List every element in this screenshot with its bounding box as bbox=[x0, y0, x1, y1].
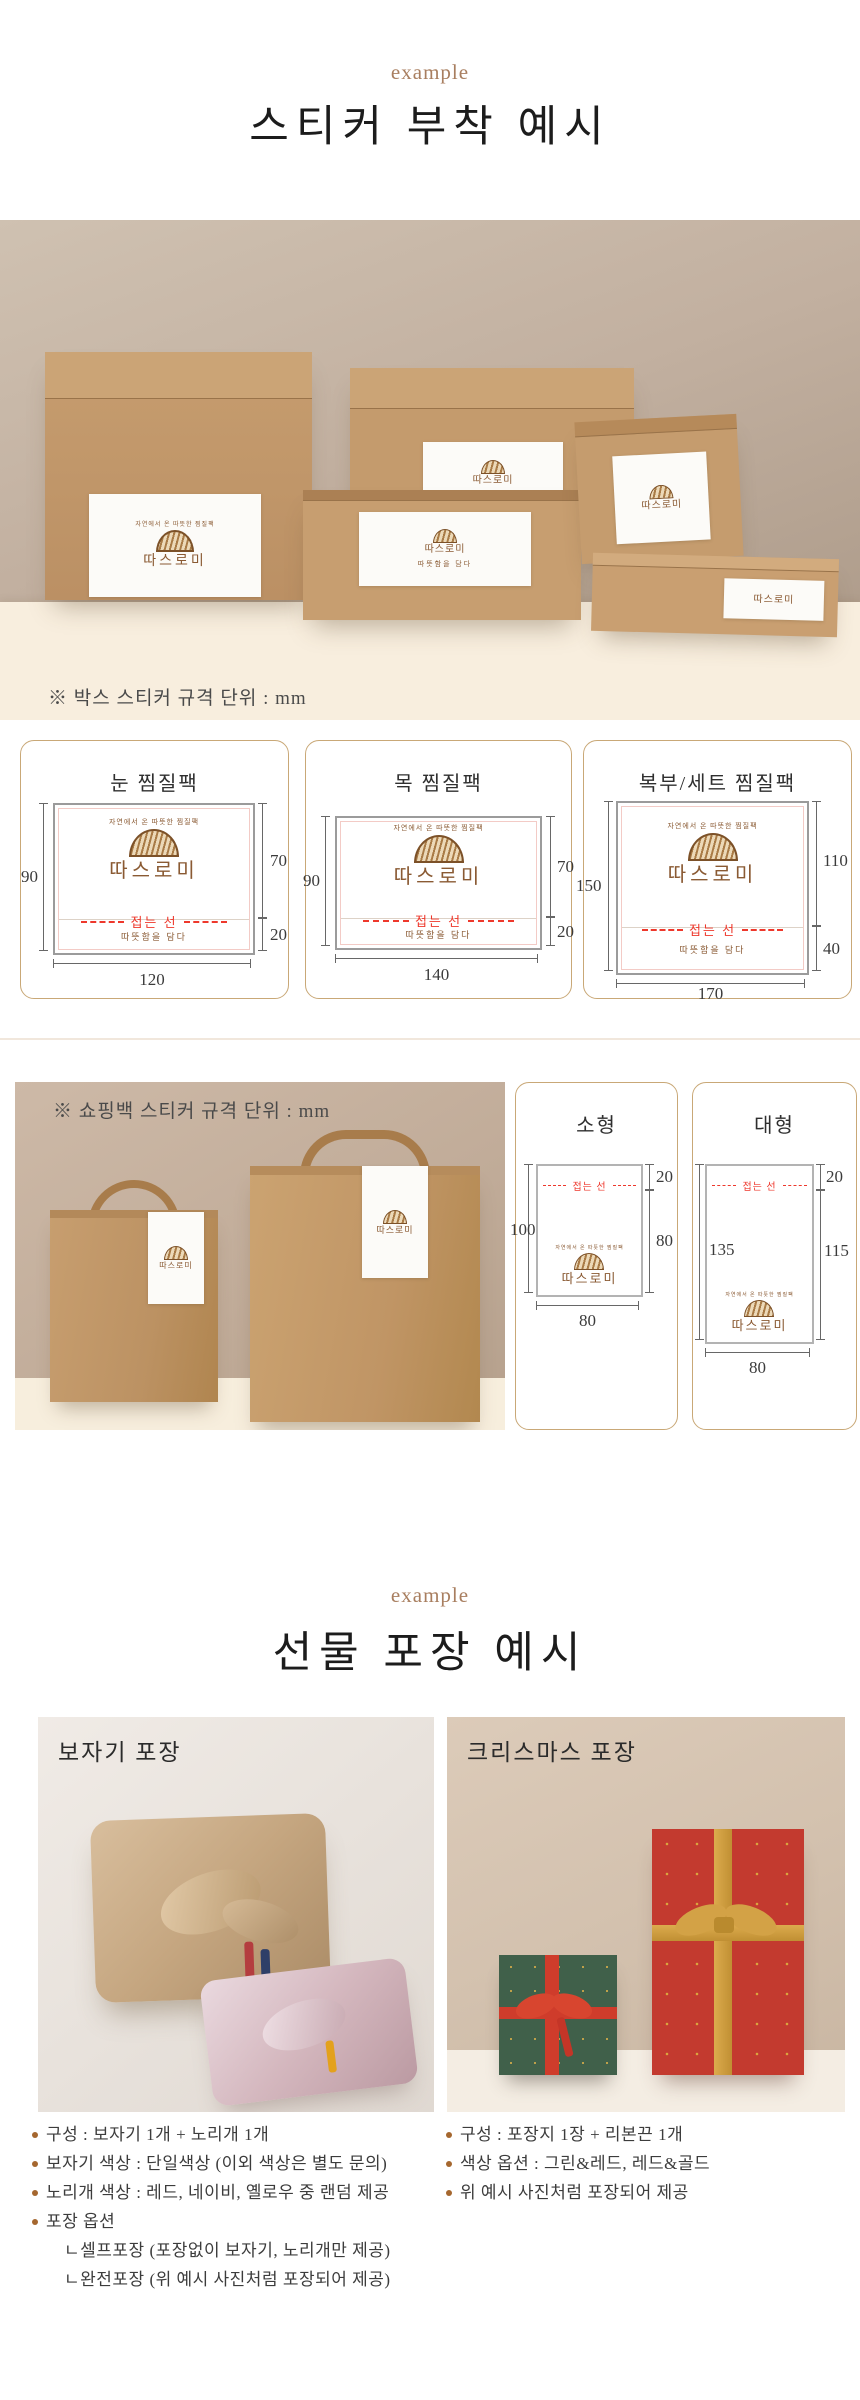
logo-arch-text: 자연에서 온 따뜻한 찜질팩 bbox=[393, 825, 483, 832]
bojagi-label: 보자기 포장 bbox=[58, 1733, 182, 1767]
brand-emblem-icon bbox=[481, 460, 505, 474]
sticker-diagram: 접는 선 자연에서 온 따뜻한 찜질팩 따스로미 bbox=[536, 1164, 643, 1297]
dim-width: 120 bbox=[53, 970, 251, 990]
bag-note: ※ 쇼핑백 스티커 규격 단위 : mm bbox=[53, 1096, 330, 1123]
spec-card-title: 눈 찜질팩 bbox=[21, 767, 288, 796]
sticker-tagline: 따뜻함을 담다 bbox=[418, 559, 472, 569]
spec-card-bag-large: 대형 접는 선 자연에서 온 따뜻한 찜질팩 따스로미 135 20 115 8… bbox=[692, 1082, 857, 1430]
logo-arch-text: 자연에서 온 따뜻한 찜질팩 bbox=[555, 1246, 623, 1251]
brand-logo: 자연에서 온 따뜻한 찜질팩 따스로미 bbox=[337, 825, 540, 887]
bullet-dot-icon bbox=[446, 2161, 452, 2167]
spec-card-title: 대형 bbox=[693, 1109, 856, 1138]
spec-card-neck-pack: 목 찜질팩 자연에서 온 따뜻한 찜질팩 따스로미 접는 선 따뜻함을 담다 9… bbox=[305, 740, 572, 999]
brand-emblem-icon bbox=[129, 829, 179, 857]
brand-logo: 자연에서 온 따뜻한 찜질팩 따스로미 bbox=[538, 1246, 641, 1285]
fold-line-label: 접는 선 bbox=[363, 911, 514, 930]
sticker-tagline: 따뜻함을 담다 bbox=[618, 943, 807, 956]
brand-name: 따스로미 bbox=[732, 1319, 788, 1332]
product-detail-page: example 스티커 부착 예시 자연에서 온 따뜻한 찜질팩 따스로미 따스… bbox=[0, 0, 860, 2400]
shopping-bag-large: 따스로미 bbox=[250, 1166, 480, 1422]
brand-emblem-icon bbox=[156, 530, 194, 552]
dim-lower: 115 bbox=[824, 1241, 849, 1261]
bullet-dot-icon bbox=[32, 2132, 38, 2138]
fold-line-label: 접는 선 bbox=[712, 1178, 807, 1193]
brand-name: 따스로미 bbox=[159, 1262, 192, 1270]
christmas-label: 크리스마스 포장 bbox=[467, 1733, 637, 1767]
list-subitem: ㄴ완전포장 (위 예시 사진처럼 포장되어 제공) bbox=[30, 2265, 440, 2294]
bullet-dot-icon bbox=[446, 2132, 452, 2138]
green-gift-box bbox=[499, 1955, 617, 2075]
brand-logo: 자연에서 온 따뜻한 찜질팩 따스로미 bbox=[707, 1293, 812, 1332]
dimension-line bbox=[812, 801, 821, 926]
spec-card-belly-set-pack: 복부/세트 찜질팩 자연에서 온 따뜻한 찜질팩 따스로미 접는 선 따뜻함을 … bbox=[583, 740, 852, 999]
dimension-line bbox=[604, 801, 613, 971]
kraft-box-large: 자연에서 온 따뜻한 찜질팩 따스로미 bbox=[45, 352, 312, 600]
sticker-diagram: 자연에서 온 따뜻한 찜질팩 따스로미 접는 선 따뜻함을 담다 bbox=[53, 803, 255, 955]
box-sticker: 따스로미 bbox=[612, 451, 710, 544]
bag-sticker: 따스로미 bbox=[148, 1212, 204, 1304]
section1-title: 스티커 부착 예시 bbox=[0, 92, 860, 154]
dim-lower: 20 bbox=[557, 922, 574, 942]
brand-name: 따스로미 bbox=[562, 1272, 618, 1285]
dim-upper: 110 bbox=[823, 851, 848, 871]
section-divider bbox=[0, 1038, 860, 1040]
brand-logo: 자연에서 온 따뜻한 찜질팩 따스로미 bbox=[55, 819, 253, 881]
dim-height: 135 bbox=[709, 1240, 743, 1260]
dim-width: 140 bbox=[335, 965, 538, 985]
bullet-dot-icon bbox=[446, 2190, 452, 2196]
bag-sticker: 따스로미 bbox=[362, 1166, 428, 1278]
bojagi-photo: 보자기 포장 bbox=[38, 1717, 434, 2112]
brand-emblem-icon bbox=[688, 833, 738, 861]
dimension-line bbox=[258, 803, 267, 918]
logo-arch-text: 자연에서 온 따뜻한 찜질팩 bbox=[667, 823, 757, 830]
logo-arch-text: 자연에서 온 따뜻한 찜질팩 bbox=[109, 819, 199, 826]
gold-ribbon bbox=[714, 1829, 732, 2075]
dim-height: 100 bbox=[510, 1220, 540, 1240]
brand-logo: 따스로미 bbox=[753, 593, 794, 606]
list-item: 포장 옵션 bbox=[30, 2207, 440, 2236]
red-gift-box bbox=[652, 1829, 804, 2075]
bullet-dot-icon bbox=[32, 2190, 38, 2196]
logo-arch-text: 자연에서 온 따뜻한 찜질팩 bbox=[725, 1293, 793, 1298]
kraft-box-small-standing: 따스로미 bbox=[574, 414, 743, 564]
brand-emblem-icon bbox=[574, 1253, 604, 1270]
dimension-line bbox=[546, 917, 555, 946]
dim-top: 20 bbox=[656, 1167, 673, 1187]
dimension-line bbox=[645, 1164, 654, 1190]
brand-emblem-icon bbox=[164, 1246, 188, 1260]
bow-knot bbox=[714, 1917, 734, 1933]
bullet-dot-icon bbox=[32, 2219, 38, 2225]
sticker-tagline: 따뜻함을 담다 bbox=[55, 930, 253, 943]
dimension-line bbox=[39, 803, 48, 951]
section1-eyebrow: example bbox=[0, 60, 860, 85]
kraft-box-front: 따스로미 따뜻함을 담다 bbox=[303, 490, 581, 620]
dimension-line bbox=[812, 926, 821, 971]
fold-line-label: 접는 선 bbox=[642, 920, 783, 939]
box-lid bbox=[303, 490, 581, 501]
dim-width: 80 bbox=[536, 1311, 639, 1331]
brand-emblem-icon bbox=[383, 1210, 407, 1224]
box-photo: 자연에서 온 따뜻한 찜질팩 따스로미 따스로미 따스로미 bbox=[0, 220, 860, 720]
spec-card-title: 소형 bbox=[516, 1109, 677, 1138]
christmas-bullet-list: 구성 : 포장지 1장 + 리본끈 1개 색상 옵션 : 그린&레드, 레드&골… bbox=[444, 2120, 844, 2207]
dimension-line bbox=[695, 1164, 704, 1340]
box-sticker: 자연에서 온 따뜻한 찜질팩 따스로미 bbox=[89, 494, 261, 597]
dim-width: 170 bbox=[616, 984, 805, 1004]
tassel-red bbox=[244, 1942, 254, 1980]
dimension-line bbox=[816, 1190, 825, 1340]
dim-upper: 70 bbox=[270, 851, 287, 871]
dimension-line bbox=[321, 816, 330, 946]
dimension-line bbox=[546, 816, 555, 917]
brand-logo: 따스로미 bbox=[425, 529, 466, 555]
kraft-box-flat: 따스로미 bbox=[591, 553, 839, 637]
dimension-line bbox=[258, 918, 267, 951]
spec-card-title: 목 찜질팩 bbox=[306, 767, 571, 796]
bojagi-bullet-list: 구성 : 보자기 1개 + 노리개 1개 보자기 색상 : 단일색상 (이외 색… bbox=[30, 2120, 440, 2294]
dim-height: 90 bbox=[21, 867, 37, 887]
dimension-line bbox=[335, 954, 538, 963]
brand-emblem-icon bbox=[649, 484, 674, 499]
fold-line-label: 접는 선 bbox=[81, 912, 227, 931]
bojagi-knot bbox=[256, 1989, 352, 2060]
dimension-line bbox=[536, 1301, 639, 1310]
sticker-diagram: 자연에서 온 따뜻한 찜질팩 따스로미 접는 선 따뜻함을 담다 bbox=[616, 801, 809, 975]
brand-name: 따스로미 bbox=[376, 1226, 413, 1235]
box-note: ※ 박스 스티커 규격 단위 : mm bbox=[48, 683, 307, 710]
brand-logo: 따스로미 bbox=[159, 1246, 192, 1270]
pink-bojagi-gift bbox=[199, 1957, 419, 2107]
brand-emblem-icon bbox=[744, 1300, 774, 1317]
brand-name: 따스로미 bbox=[473, 476, 514, 486]
brand-name: 따스로미 bbox=[753, 595, 794, 606]
sticker-diagram: 자연에서 온 따뜻한 찜질팩 따스로미 접는 선 따뜻함을 담다 bbox=[335, 816, 542, 950]
box-sticker: 따스로미 bbox=[723, 578, 824, 621]
dimension-line bbox=[705, 1348, 810, 1357]
dim-upper: 70 bbox=[557, 857, 574, 877]
brand-logo: 자연에서 온 따뜻한 찜질팩 따스로미 bbox=[135, 522, 214, 569]
list-item: 구성 : 보자기 1개 + 노리개 1개 bbox=[30, 2120, 440, 2149]
section2-eyebrow: example bbox=[0, 1583, 860, 1608]
spec-card-eye-pack: 눈 찜질팩 자연에서 온 따뜻한 찜질팩 따스로미 접는 선 따뜻함을 담다 9… bbox=[20, 740, 289, 999]
spec-card-title: 복부/세트 찜질팩 bbox=[584, 767, 851, 796]
shopping-bag-small: 따스로미 bbox=[50, 1210, 218, 1402]
dim-height: 90 bbox=[303, 871, 319, 891]
brand-name: 따스로미 bbox=[425, 545, 466, 555]
dimension-line bbox=[816, 1164, 825, 1190]
dim-top: 20 bbox=[826, 1167, 843, 1187]
section2-title: 선물 포장 예시 bbox=[0, 1618, 860, 1680]
list-subitem: ㄴ셀프포장 (포장없이 보자기, 노리개만 제공) bbox=[30, 2236, 440, 2265]
list-item: 색상 옵션 : 그린&레드, 레드&골드 bbox=[444, 2149, 844, 2178]
dim-height: 150 bbox=[576, 876, 600, 896]
brand-name: 따스로미 bbox=[109, 861, 199, 881]
bullet-dot-icon bbox=[32, 2161, 38, 2167]
brand-name: 따스로미 bbox=[394, 867, 484, 887]
brand-logo: 따스로미 bbox=[473, 460, 514, 486]
list-item: 구성 : 포장지 1장 + 리본끈 1개 bbox=[444, 2120, 844, 2149]
list-item: 보자기 색상 : 단일색상 (이외 색상은 별도 문의) bbox=[30, 2149, 440, 2178]
list-item: 위 예시 사진처럼 포장되어 제공 bbox=[444, 2178, 844, 2207]
dim-lower: 40 bbox=[823, 939, 840, 959]
dim-lower: 80 bbox=[656, 1231, 673, 1251]
christmas-photo: 크리스마스 포장 bbox=[447, 1717, 845, 2112]
box-sticker: 따스로미 따뜻함을 담다 bbox=[359, 512, 531, 586]
brand-logo: 따스로미 bbox=[376, 1210, 413, 1235]
dim-width: 80 bbox=[705, 1358, 810, 1378]
brand-name: 따스로미 bbox=[668, 865, 758, 885]
dim-lower: 20 bbox=[270, 925, 287, 945]
logo-arch-text: 자연에서 온 따뜻한 찜질팩 bbox=[135, 522, 214, 528]
brand-name: 따스로미 bbox=[641, 500, 682, 512]
box-lid bbox=[350, 368, 634, 409]
spec-card-bag-small: 소형 접는 선 자연에서 온 따뜻한 찜질팩 따스로미 100 20 80 80 bbox=[515, 1082, 678, 1430]
fold-line-label: 접는 선 bbox=[543, 1178, 636, 1193]
brand-name: 따스로미 bbox=[143, 555, 207, 569]
bag-photo: 따스로미 따스로미 ※ 쇼핑백 스티커 규격 단위 : mm bbox=[15, 1082, 505, 1430]
tassel-yellow bbox=[325, 2040, 337, 2073]
dimension-line bbox=[645, 1190, 654, 1293]
brand-logo: 자연에서 온 따뜻한 찜질팩 따스로미 bbox=[618, 823, 807, 885]
list-item: 노리개 색상 : 레드, 네이비, 옐로우 중 랜덤 제공 bbox=[30, 2178, 440, 2207]
brand-emblem-icon bbox=[414, 835, 464, 863]
dimension-line bbox=[53, 959, 251, 968]
brand-logo: 따스로미 bbox=[640, 484, 682, 512]
brand-emblem-icon bbox=[433, 529, 457, 543]
box-lid bbox=[45, 352, 312, 399]
